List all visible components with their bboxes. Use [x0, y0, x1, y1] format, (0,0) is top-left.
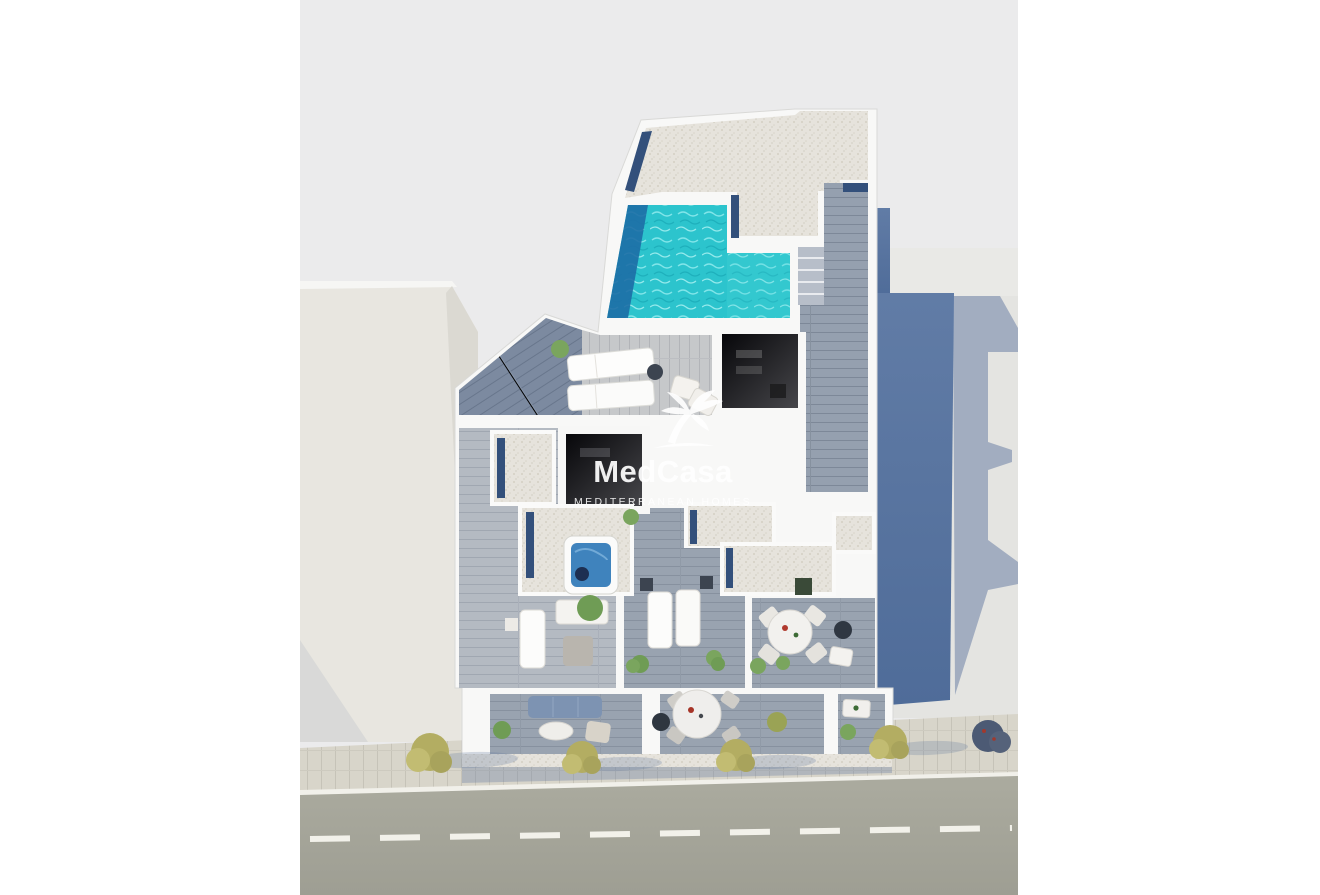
watermark-tagline: MEDITERRANEAN HOMES — [574, 496, 752, 508]
potted-plant — [551, 340, 569, 358]
side-table — [652, 713, 670, 731]
sun-lounger — [648, 592, 672, 648]
left-neighbour-building — [300, 281, 478, 742]
dining-terrace — [750, 598, 875, 688]
right-neighbour-roof — [877, 208, 1018, 718]
armchair — [585, 720, 612, 743]
potted-plant — [767, 712, 787, 732]
side-table — [647, 364, 663, 380]
side-table — [640, 578, 653, 591]
sofa — [528, 696, 602, 718]
potted-plant — [750, 658, 766, 674]
sun-lounger — [676, 590, 700, 646]
skylight-strip — [726, 548, 733, 588]
potted-plant — [623, 509, 639, 525]
parapet-strip — [462, 754, 892, 767]
planter-box — [795, 578, 812, 595]
side-table — [505, 618, 518, 631]
potted-plant — [577, 595, 603, 621]
skylight-strip — [731, 195, 739, 238]
chair — [829, 646, 854, 667]
aerial-render: MedCasa MEDITERRANEAN HOMES — [0, 0, 1320, 895]
potted-plant — [776, 656, 790, 670]
stair-void-upper — [722, 334, 798, 408]
potted-plant — [626, 659, 640, 673]
skylight-strip — [497, 438, 505, 498]
watermark-brand: MedCasa — [593, 454, 733, 489]
hot-tub — [564, 536, 618, 594]
side-wall-blue — [877, 293, 954, 706]
round-table — [768, 610, 812, 654]
skylight-strip — [690, 510, 697, 544]
sun-lounger — [520, 610, 545, 668]
render-canvas: MedCasa MEDITERRANEAN HOMES — [0, 0, 1320, 895]
coffee-table — [539, 722, 573, 740]
deck-edge-shadow — [843, 183, 868, 192]
side-wall-upper — [877, 208, 890, 296]
potted-plant — [711, 657, 725, 671]
potted-plant — [493, 721, 511, 739]
side-table — [700, 576, 713, 589]
armchair — [563, 636, 593, 666]
side-table — [834, 621, 852, 639]
skylight-strip — [526, 512, 534, 578]
round-table — [673, 690, 721, 738]
deck-stairs — [798, 247, 824, 305]
sun-lounger — [567, 380, 655, 411]
potted-plant — [840, 724, 856, 740]
hot-tub-cover — [575, 567, 589, 581]
